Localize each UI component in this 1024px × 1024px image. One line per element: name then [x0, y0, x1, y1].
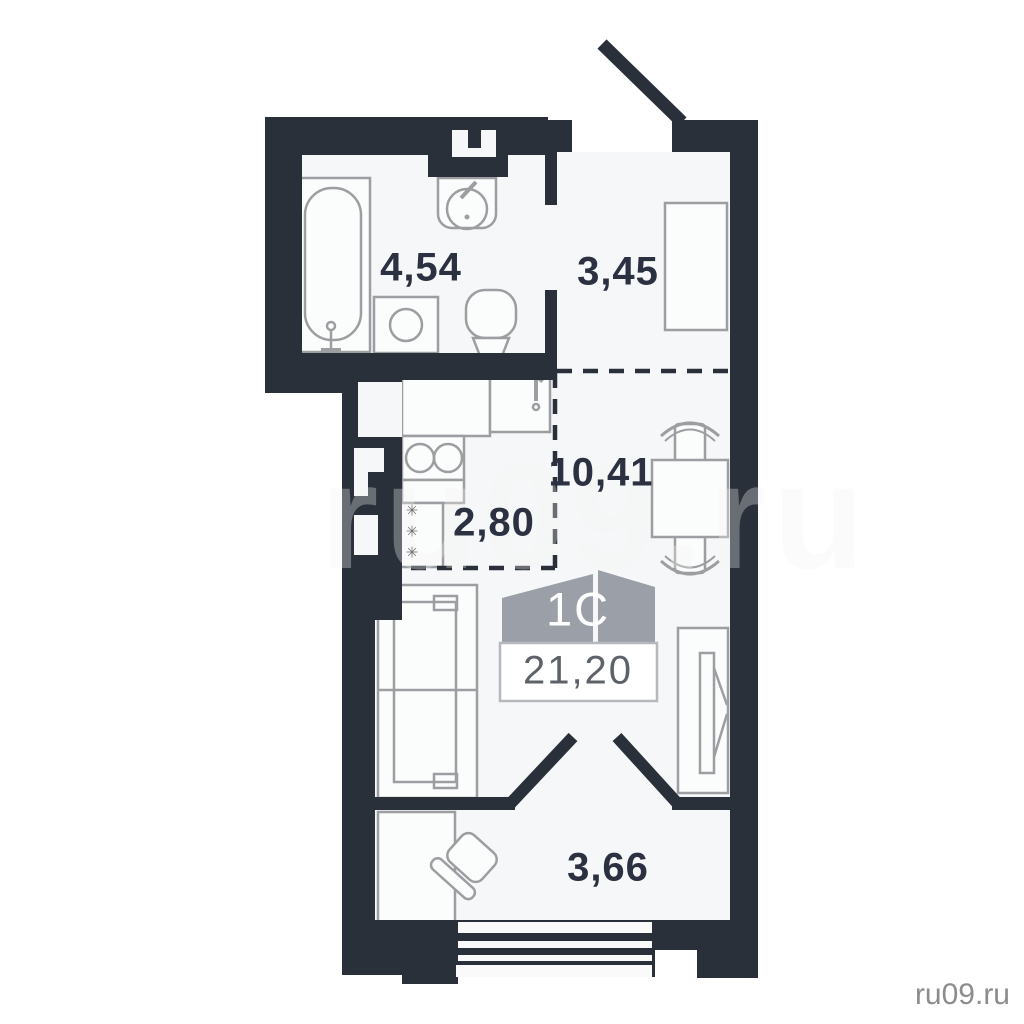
- glazing-stripe: [458, 955, 652, 961]
- stove: [402, 436, 464, 480]
- hallway-wardrobe: [665, 203, 727, 330]
- glazing-stripe: [458, 922, 652, 933]
- dining-table: [652, 460, 728, 537]
- wall-foot-right: [697, 950, 758, 978]
- sliding-wardrobe: [678, 628, 728, 793]
- wall-partition-lower: [545, 290, 557, 380]
- shaft-niche-step: [368, 472, 384, 496]
- vent-divider: [468, 130, 481, 148]
- wall-balcony-bottom-right: [652, 920, 758, 950]
- shaft-niche-1: [358, 382, 402, 437]
- wall-balcony-bottom-left: [375, 920, 458, 975]
- wall-right: [730, 120, 758, 978]
- balcony-area-label: 3,66: [567, 846, 649, 891]
- refrigerator-snowflakes: ✳✳✳: [402, 502, 420, 565]
- wall-left-upper: [265, 117, 302, 393]
- unit-type-label: 1С: [546, 582, 610, 637]
- unit-total-area: 21,20: [523, 649, 633, 694]
- wall-balcony-left: [375, 797, 515, 810]
- living-room-area-label: 10,41: [548, 451, 653, 496]
- floor-plan: ru09.ru 4,54 3,45 2,80 10,41 3,66 ✳✳✳ 1С…: [0, 0, 1024, 1024]
- wall-foot-left: [402, 975, 458, 984]
- bathtub: [296, 178, 370, 352]
- bathroom-area-label: 4,54: [380, 246, 462, 291]
- glazing-stripe: [456, 965, 652, 977]
- shaft-niche-3: [354, 515, 378, 555]
- washing-machine: [374, 297, 438, 353]
- corner-watermark: ru09.ru: [915, 978, 1010, 1012]
- kitchen-area-label: 2,80: [453, 501, 535, 546]
- hallway-area-label: 3,45: [577, 250, 659, 295]
- entrance-door: [602, 44, 682, 122]
- bathroom-door-gap: [545, 205, 557, 290]
- wall-partition-upper: [545, 150, 557, 205]
- wall-left-lower: [342, 620, 375, 975]
- wall-top-hall-left: [548, 120, 572, 152]
- kitchen-sink: [490, 371, 550, 432]
- bathroom-sink: [438, 178, 496, 229]
- glazing-stripe: [458, 941, 652, 948]
- wall-left-step: [265, 353, 342, 393]
